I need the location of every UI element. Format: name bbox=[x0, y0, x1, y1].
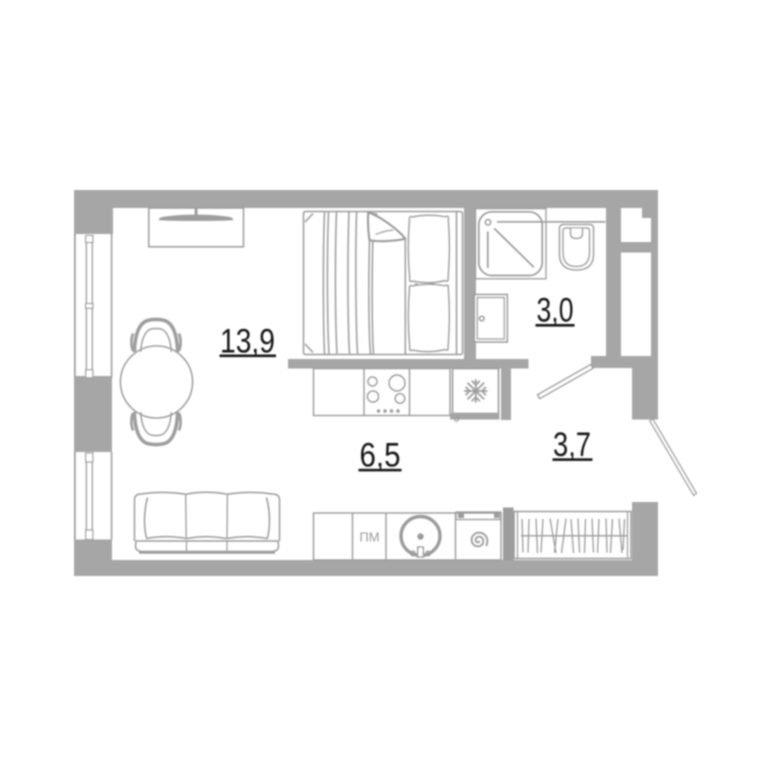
svg-text:3,0: 3,0 bbox=[537, 292, 574, 330]
svg-text:ПМ: ПМ bbox=[359, 530, 379, 545]
